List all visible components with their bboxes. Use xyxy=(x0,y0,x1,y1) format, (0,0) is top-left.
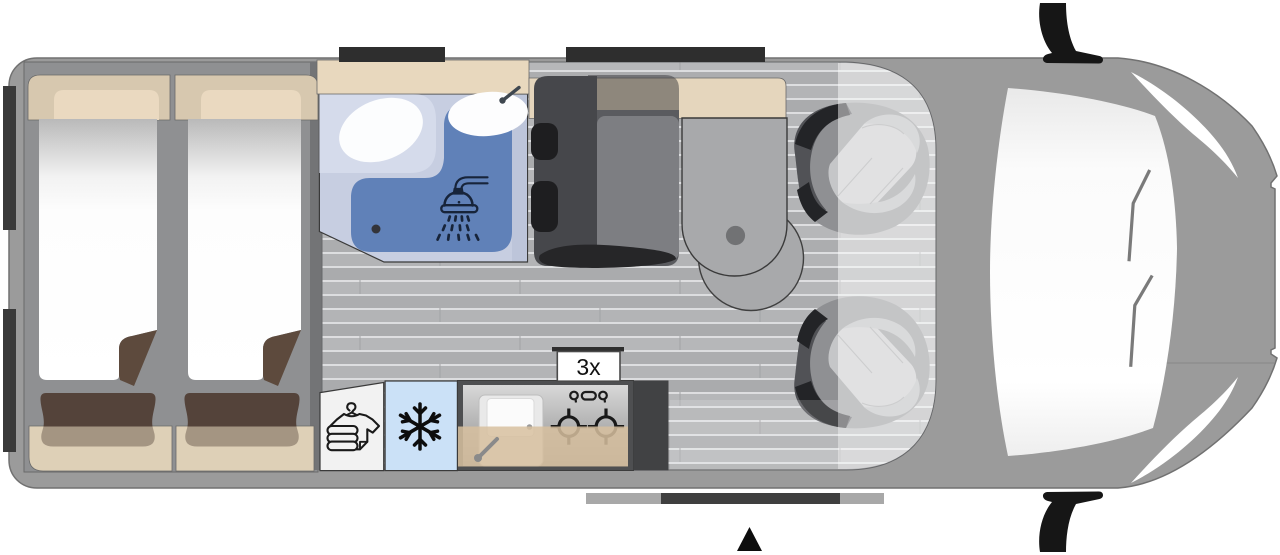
svg-text:3x: 3x xyxy=(576,354,601,380)
